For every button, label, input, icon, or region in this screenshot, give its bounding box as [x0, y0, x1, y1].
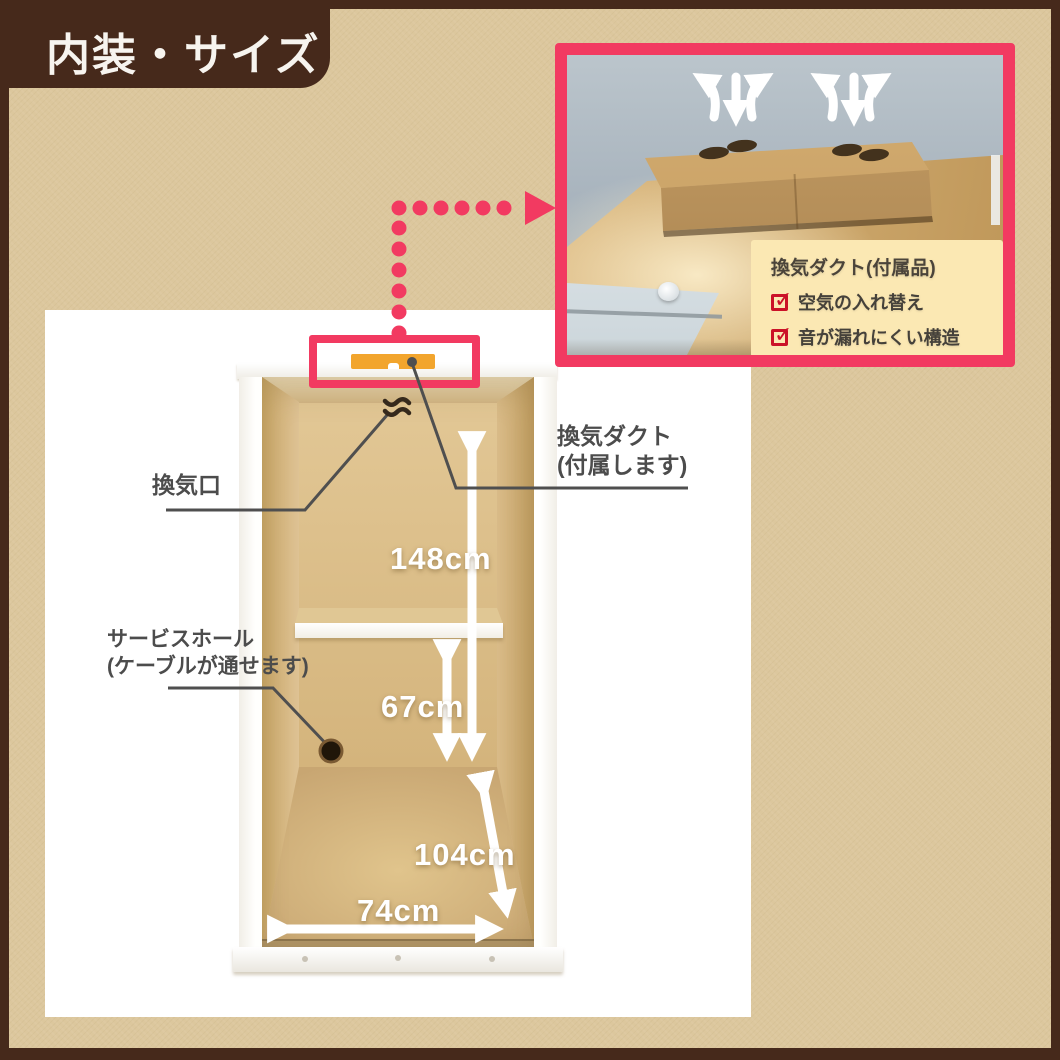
measurement-floor-width: 74cm	[357, 893, 440, 929]
title-badge: 内装・サイズ	[0, 0, 330, 88]
label-service-hole-line1: サービスホール	[107, 627, 309, 654]
callout-item-label: 音が漏れにくい構造	[798, 324, 960, 350]
connector-arrowhead	[525, 191, 556, 225]
measurement-floor-depth: 104cm	[414, 837, 516, 873]
callout-item: 空気の入れ替え	[771, 289, 991, 315]
infographic-canvas: 148cm 67cm 104cm 74cm 換気口 換気ダクト (付属します) …	[0, 0, 1060, 1060]
measurement-under-shelf-height: 67cm	[381, 689, 464, 725]
airflow-up-left-icon	[701, 78, 715, 117]
measurement-interior-height: 148cm	[390, 541, 492, 577]
vent-duct-shape	[351, 354, 435, 369]
label-vent-duct: 換気ダクト (付属します)	[557, 422, 687, 481]
callout-title: 換気ダクト(付属品)	[771, 253, 991, 280]
label-vent-duct-line2: (付属します)	[557, 451, 687, 480]
duct-photo-inset: 換気ダクト(付属品) 空気の入れ替え 音が漏れにくい構造	[555, 43, 1015, 367]
booth-shelf-edge	[295, 623, 503, 638]
booth-base	[233, 947, 563, 972]
callout-item-label: 空気の入れ替え	[798, 289, 924, 315]
duct-notch	[388, 363, 399, 369]
red-checkbox-icon	[771, 294, 788, 311]
airflow-up-right-icon	[869, 78, 883, 117]
booth-shelf-surface	[292, 608, 506, 624]
airflow-up-left-icon	[819, 78, 833, 117]
page-title: 内装・サイズ	[46, 19, 321, 83]
label-vent-duct-line1: 換気ダクト	[557, 422, 687, 451]
callout-item: 音が漏れにくい構造	[771, 324, 991, 350]
booth-right-frame	[534, 377, 557, 949]
duct-feature-callout: 換気ダクト(付属品) 空気の入れ替え 音が漏れにくい構造	[751, 240, 1003, 355]
label-vent-opening: 換気口	[152, 471, 221, 500]
booth-floor-front-edge	[262, 939, 534, 947]
label-service-hole: サービスホール (ケーブルが通せます)	[107, 627, 309, 681]
red-checkbox-icon	[771, 329, 788, 346]
airflow-up-right-icon	[751, 78, 765, 117]
duct-photo: 換気ダクト(付属品) 空気の入れ替え 音が漏れにくい構造	[567, 55, 1003, 355]
label-service-hole-line2: (ケーブルが通せます)	[107, 654, 309, 681]
